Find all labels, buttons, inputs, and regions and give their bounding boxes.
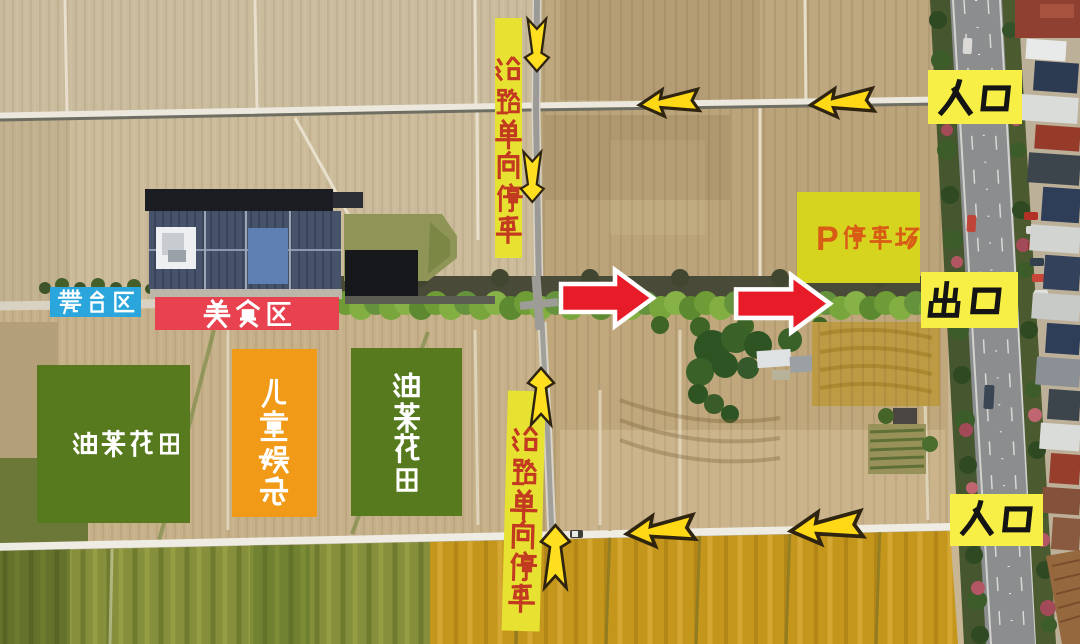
svg-text:P: P bbox=[816, 220, 839, 258]
